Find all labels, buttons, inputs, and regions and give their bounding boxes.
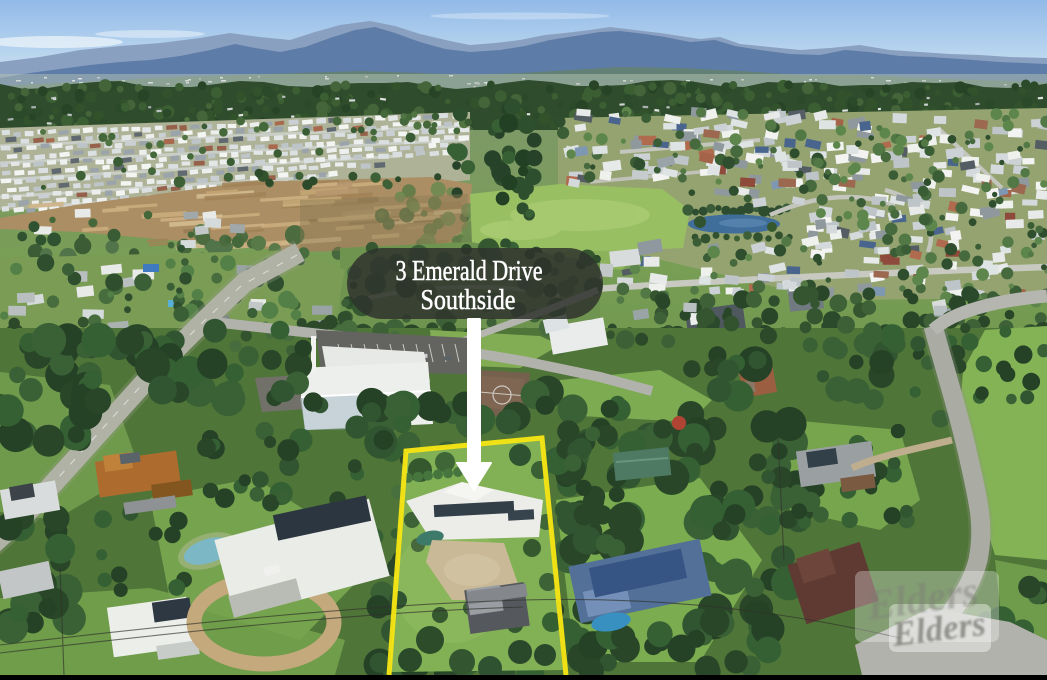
svg-text:Southside: Southside	[421, 285, 516, 316]
svg-text:3 Emerald Drive: 3 Emerald Drive	[396, 256, 543, 287]
